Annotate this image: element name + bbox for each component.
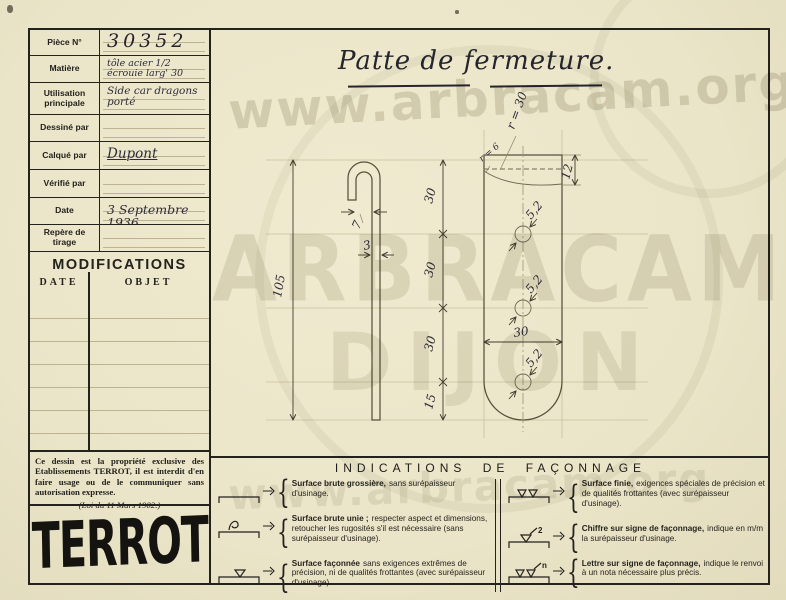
- field-value: [100, 115, 209, 141]
- field-material: Matière tôle acier 1/2 écrouie larg' 30: [30, 56, 209, 83]
- legend-title: INDICATIONS DE FAÇONNAGE: [211, 461, 770, 475]
- legend-text: Surface finie,exigences spéciales de pré…: [582, 479, 767, 509]
- surface-one-triangle-symbol-icon: [216, 560, 262, 586]
- signature: Dupont: [100, 142, 209, 169]
- svg-text:5,2: 5,2: [523, 272, 546, 296]
- dim-hole-1: 5,2: [509, 198, 546, 251]
- arrow-icon: [262, 520, 276, 532]
- arrow-icon: [552, 530, 566, 542]
- svg-text:15: 15: [421, 392, 438, 410]
- brace-glyph: {: [277, 561, 290, 593]
- legend-item-brute-unie: { Surface brute unie ;respecter aspect e…: [216, 513, 492, 552]
- arrow-icon: [552, 565, 566, 577]
- field-date: Date 3 Septembre 1936: [30, 198, 209, 225]
- triangles-with-letter-symbol-icon: n: [506, 560, 552, 586]
- arrow-icon: [262, 565, 276, 577]
- field-drawn-by: Dessiné par: [30, 115, 209, 142]
- legend-text: Surface brute grossière,sans surépaisseu…: [292, 479, 492, 499]
- field-value: 30352: [100, 30, 209, 55]
- legend-item-chiffre: 2 { Chiffre sur signe de façonnage,indiq…: [506, 523, 767, 552]
- legend-item-brute-grossiere: { Surface brute grossière,sans surépaiss…: [216, 478, 492, 507]
- brace-glyph: {: [567, 556, 580, 588]
- dim-hole-3: 5,2: [509, 346, 546, 399]
- field-traced-by: Calqué par Dupont: [30, 142, 209, 170]
- column-header-date: DATE: [30, 277, 88, 294]
- column-divider: [88, 272, 90, 450]
- legend-right-column: { Surface finie,exigences spéciales de p…: [501, 478, 770, 596]
- dim-radius-top: r = 30: [500, 90, 530, 170]
- side-view-hook: [348, 162, 380, 420]
- legend-item-lettre: n { Lettre sur signe de façonnage,indiqu…: [506, 558, 767, 587]
- svg-text:105: 105: [270, 274, 288, 299]
- surface-two-triangles-symbol-icon: [506, 480, 552, 506]
- field-main-use: Utilisation principale Side car dragons …: [30, 83, 209, 115]
- dim-thickness: 3: [358, 238, 394, 255]
- modifications-title: MODIFICATIONS: [30, 252, 209, 277]
- field-value: [100, 225, 209, 251]
- svg-text:r = 6: r = 6: [478, 141, 502, 164]
- surface-wavy-symbol-icon: [216, 515, 262, 541]
- svg-text:5,2: 5,2: [523, 346, 546, 370]
- column-header-objet: OBJET: [88, 277, 209, 294]
- field-label: Utilisation principale: [30, 83, 100, 114]
- dim-hole-2: 5,2: [509, 272, 546, 325]
- brace-glyph: {: [567, 521, 580, 553]
- legend-columns: { Surface brute grossière,sans surépaiss…: [211, 478, 770, 596]
- dim-chain: 30 30 30 15: [421, 160, 447, 420]
- construction-guides: [266, 130, 648, 438]
- svg-text:r = 30: r = 30: [504, 90, 531, 131]
- modifications-header: DATE OBJET: [30, 277, 209, 294]
- modifications-rows: [30, 296, 209, 450]
- svg-text:30: 30: [421, 334, 439, 353]
- legend-left-column: { Surface brute grossière,sans surépaiss…: [211, 478, 495, 596]
- surface-plain-symbol-icon: [216, 480, 262, 506]
- symbol-number: 2: [538, 526, 543, 535]
- arrow-icon: [552, 485, 566, 497]
- brace-glyph: {: [277, 516, 290, 548]
- svg-text:12: 12: [558, 162, 575, 180]
- field-label: Dessiné par: [30, 115, 100, 141]
- field-label: Repère de tirage: [30, 225, 100, 251]
- drawing-title: Patte de fermeture.: [338, 46, 614, 76]
- title-block: Pièce N° 30352 Matière tôle acier 1/2 éc…: [30, 30, 211, 583]
- brace-glyph: {: [567, 481, 580, 513]
- modifications-table: MODIFICATIONS DATE OBJET: [30, 252, 209, 452]
- property-notice: Ce dessin est la propriété exclusive des…: [30, 452, 209, 506]
- legend-text: Surface façonnéesans exigences extrêmes …: [292, 559, 492, 589]
- svg-text:5,2: 5,2: [523, 198, 546, 222]
- part-drawing: 105 7 3 30 30 30 15: [211, 30, 768, 456]
- field-value: [100, 170, 209, 197]
- field-checked-by: Vérifié par: [30, 170, 209, 198]
- field-label: Date: [30, 198, 100, 224]
- field-print-mark: Repère de tirage: [30, 225, 209, 252]
- dim-radius-corner: r = 6: [478, 141, 502, 172]
- field-label: Pièce N°: [30, 30, 100, 55]
- field-value: Side car dragons porté: [100, 83, 209, 114]
- svg-text:30: 30: [512, 324, 529, 340]
- logo-box: TERROT: [30, 506, 209, 579]
- brace-glyph: {: [277, 476, 290, 508]
- legend-text: Lettre sur signe de façonnage,indique le…: [582, 559, 767, 579]
- triangle-with-number-symbol-icon: 2: [506, 525, 552, 551]
- field-label: Matière: [30, 56, 100, 82]
- field-value: tôle acier 1/2 écrouie larg' 30: [100, 56, 209, 82]
- symbol-letter: n: [542, 561, 547, 570]
- paper-speck: [455, 10, 459, 14]
- legend-item-faconnee: { Surface façonnéesans exigences extrême…: [216, 558, 492, 597]
- legend-item-finie: { Surface finie,exigences spéciales de p…: [506, 478, 767, 517]
- field-label: Calqué par: [30, 142, 100, 169]
- svg-text:7: 7: [349, 218, 365, 231]
- drawing-sheet: Pièce N° 30352 Matière tôle acier 1/2 éc…: [0, 0, 786, 600]
- terrot-logo: TERROT: [31, 502, 208, 584]
- field-piece-number: Pièce N° 30352: [30, 30, 209, 56]
- field-value: 3 Septembre 1936: [100, 198, 209, 224]
- paper-speck: [7, 5, 13, 13]
- svg-text:30: 30: [421, 186, 439, 205]
- field-label: Vérifié par: [30, 170, 100, 197]
- legend-text: Surface brute unie ;respecter aspect et …: [292, 514, 492, 544]
- svg-text:3: 3: [362, 238, 373, 253]
- arrow-icon: [262, 485, 276, 497]
- finishing-legend: INDICATIONS DE FAÇONNAGE { Surface brute…: [211, 456, 770, 585]
- legend-text: Chiffre sur signe de façonnage,indique e…: [582, 524, 767, 544]
- notice-text: Ce dessin est la propriété exclusive des…: [30, 452, 209, 498]
- svg-text:30: 30: [421, 260, 439, 279]
- dim-length: 105: [270, 160, 293, 420]
